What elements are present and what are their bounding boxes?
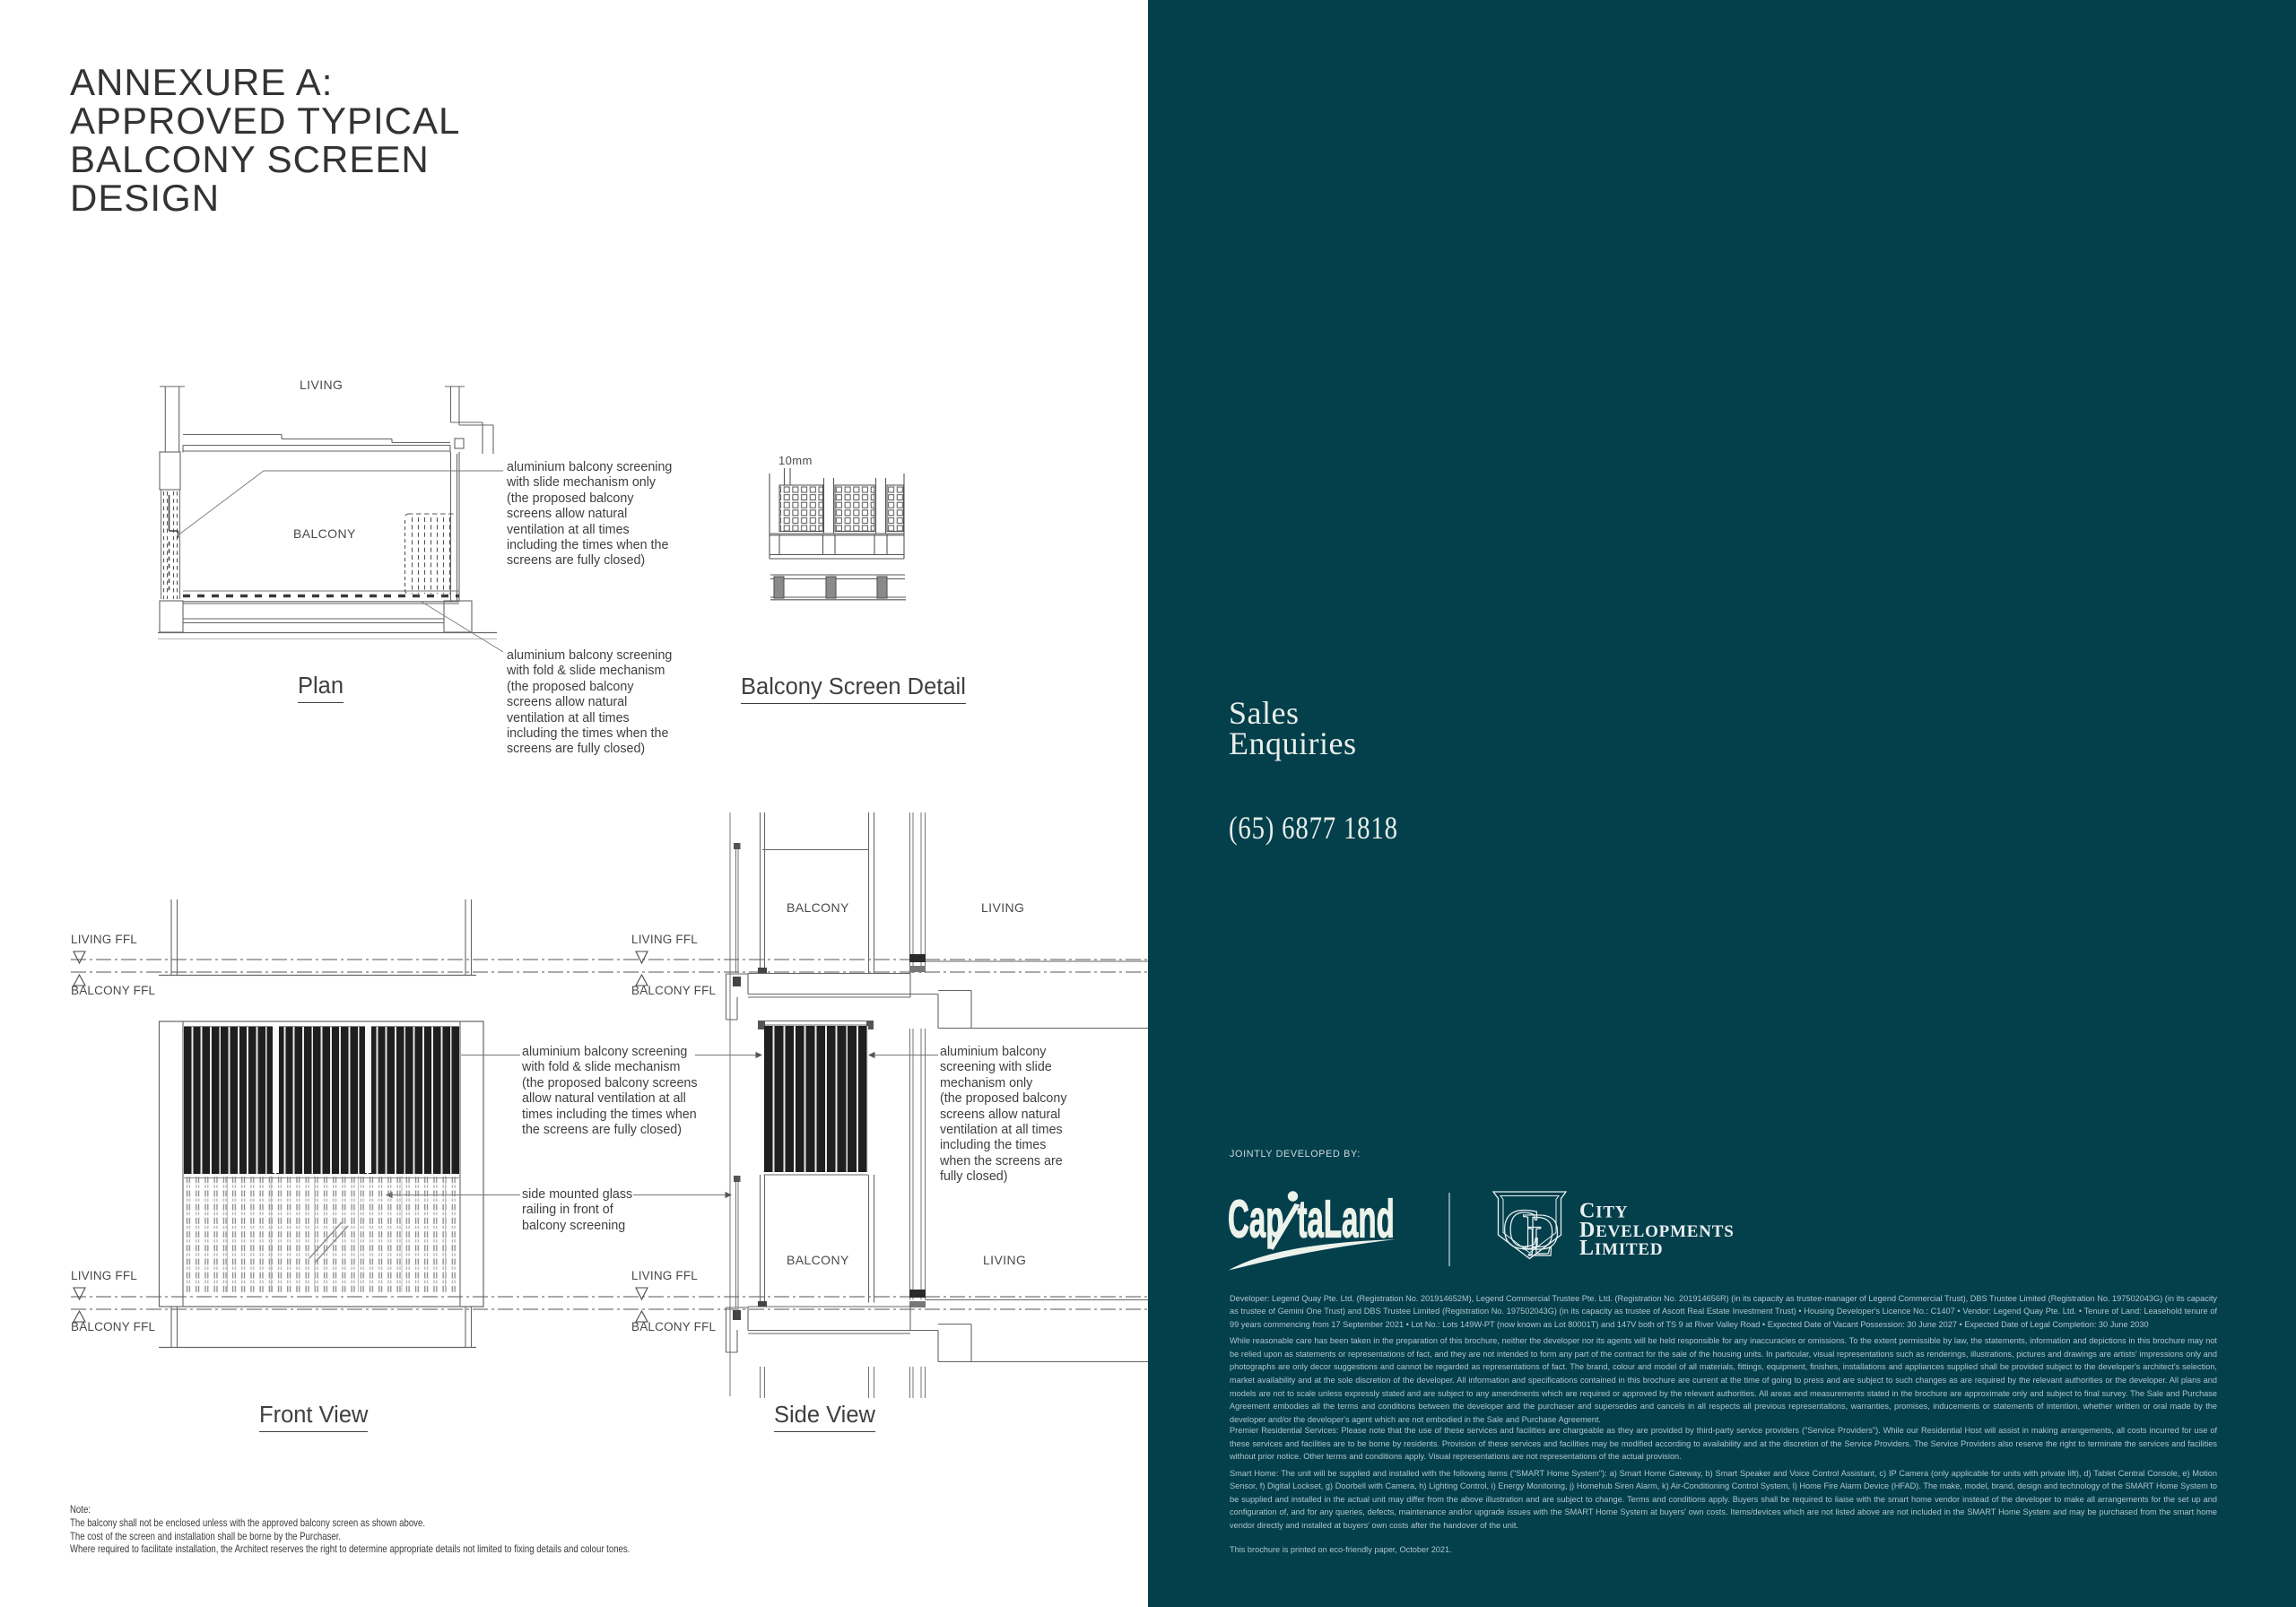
svg-text:DEVELOPMENTS: DEVELOPMENTS	[1579, 1219, 1735, 1242]
svg-text:L: L	[1527, 1218, 1553, 1265]
svg-text:LIMITED: LIMITED	[1579, 1237, 1663, 1260]
